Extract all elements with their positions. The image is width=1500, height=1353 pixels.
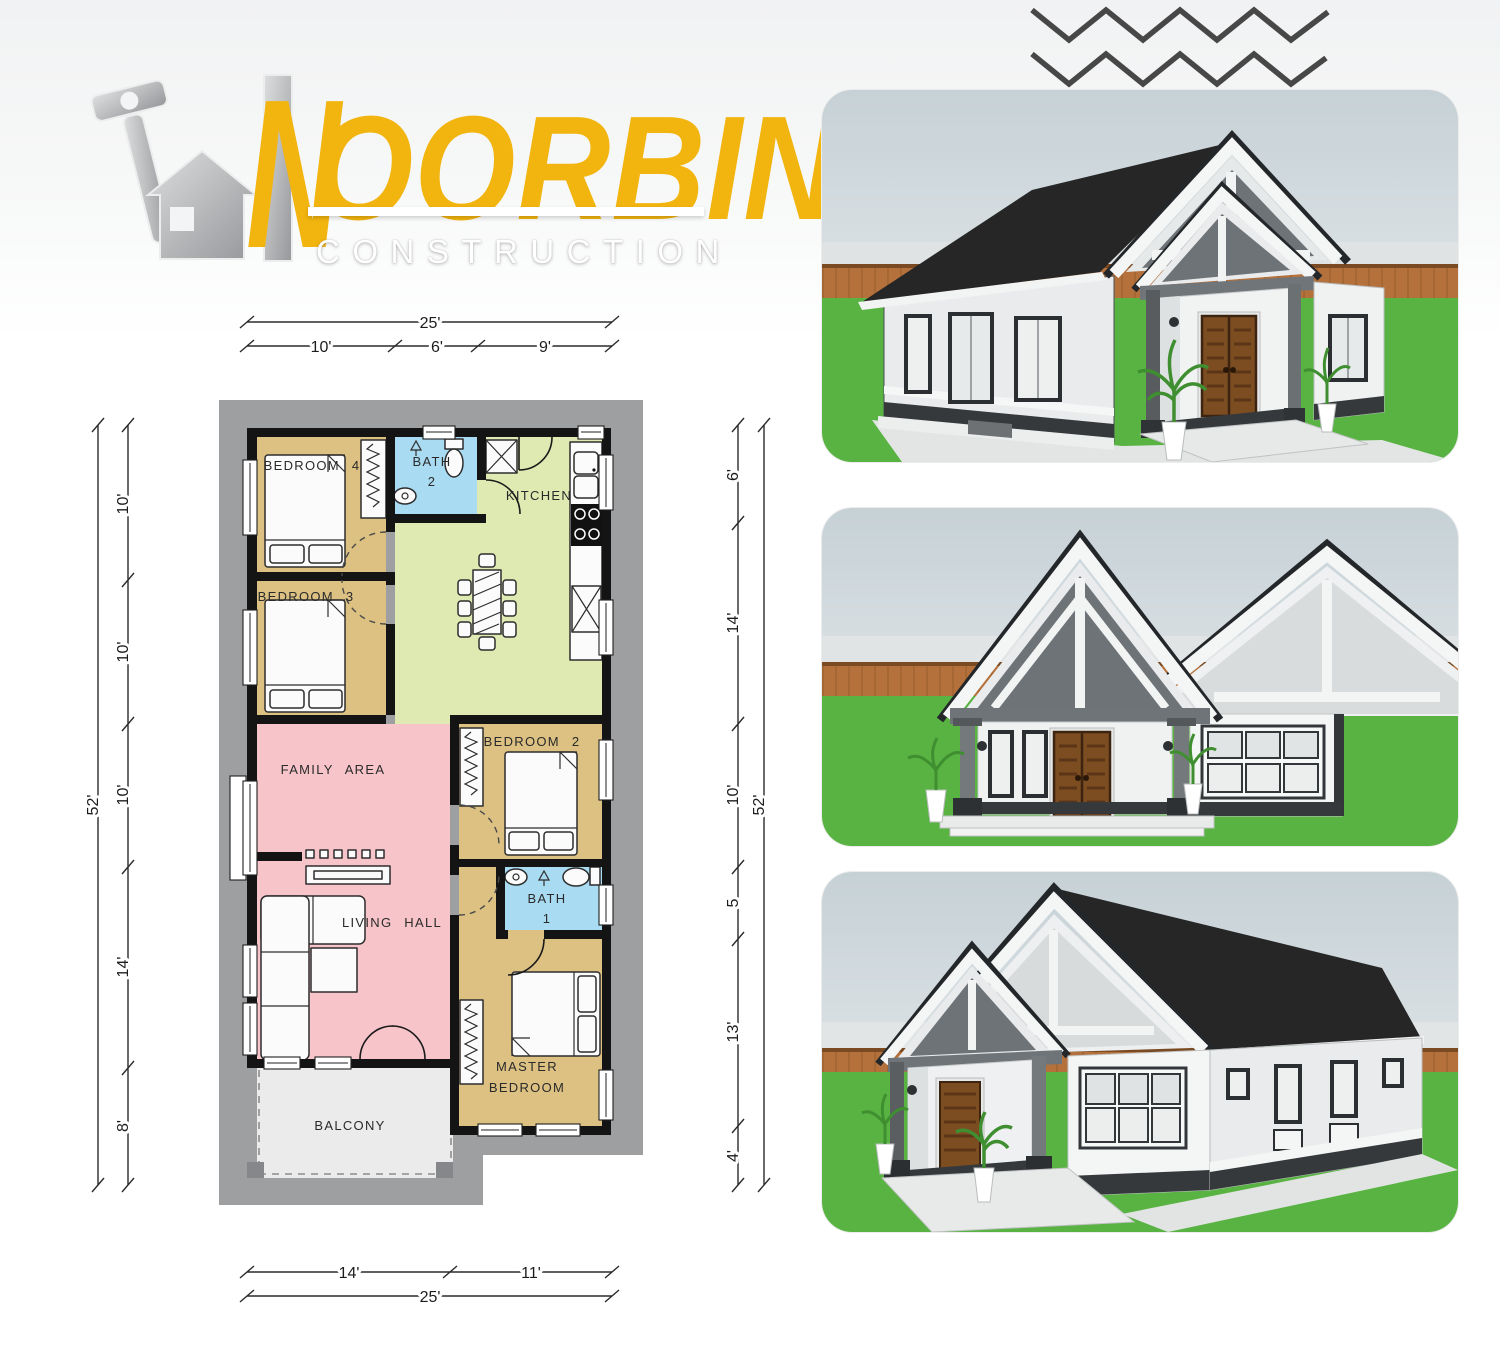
right-wing [1190,714,1344,816]
porch-column [1146,290,1160,432]
zigzag-decoration-icon [1028,0,1340,96]
porch-column [1288,284,1301,420]
bay-window [1202,726,1324,798]
svg-text:10': 10' [115,642,132,663]
front-door [1202,316,1256,416]
wall-lamp-icon [1163,741,1173,751]
svg-text:25': 25' [420,1289,441,1306]
bay-window [1080,1068,1186,1148]
house-render-perspective-left [822,90,1458,462]
room-family-area [257,724,450,867]
wardrobe-symbol-master [460,1000,483,1084]
front-door [936,1078,984,1174]
bed-symbol-bedroom3 [265,600,345,712]
dim-bottom: 14' 11' 25' [240,1265,619,1306]
svg-text:5: 5 [725,898,742,907]
wardrobe-symbol-bedroom4 [361,440,386,518]
svg-text:11': 11' [521,1265,541,1282]
dim-top: 25' 10' 6' 9' [240,315,619,356]
svg-text:14': 14' [339,1265,360,1282]
svg-text:10': 10' [115,494,132,515]
svg-text:52': 52' [751,795,768,816]
house-3d-view-3 [822,872,1458,1232]
balcony-post [436,1162,453,1178]
label-bath1-num: 1 [543,911,552,926]
svg-text:14': 14' [725,613,742,634]
svg-text:4': 4' [725,1150,742,1162]
label-bath1: BATH [528,891,567,906]
svg-text:6': 6' [431,339,443,356]
porch-column [1032,1056,1046,1170]
wall-lamp-icon [977,741,987,751]
company-logo: N OORBINA CONSTRUCTION [50,55,740,290]
label-bath2: BATH [413,454,452,469]
svg-text:9': 9' [539,339,551,356]
coffee-table-symbol [311,948,357,992]
balcony-post [247,1162,264,1178]
floor-plan: BEDROOM 4 BATH 2 KITCHEN BEDROOM 3 FAMIL… [60,300,780,1312]
washer-symbol [486,440,517,473]
right-wing [1314,282,1384,420]
house-render-perspective-right [822,872,1458,1232]
house-3d-view-2 [822,508,1458,846]
kitchen-counter-symbol [570,442,602,660]
front-wall [1068,1050,1210,1196]
label-bath2-num: 2 [428,474,437,489]
house-3d-view-1 [822,90,1458,462]
toilet-symbol-bath1 [563,867,600,886]
svg-text:52': 52' [85,795,102,816]
sink-symbol-bath1 [505,869,527,885]
svg-text:6': 6' [725,469,742,481]
wardrobe-symbol-bedroom2 [460,728,483,806]
label-living-hall: LIVING HALL [342,915,442,930]
svg-text:25': 25' [420,315,441,332]
svg-text:8': 8' [115,1120,132,1132]
label-master2: BEDROOM [489,1080,565,1095]
wall-lamp-icon [1169,317,1179,327]
porch-floor [940,816,1214,828]
dim-right: 6' 14' 10' 5 13' 4' 52' [725,418,770,1192]
label-master: MASTER [496,1059,558,1074]
label-bedroom3: BEDROOM 3 [258,589,355,604]
sink-symbol-bath2 [394,488,416,504]
bed-symbol-master [512,972,600,1056]
svg-text:10': 10' [725,785,742,806]
poster: N OORBINA CONSTRUCTION [0,0,1500,1353]
label-bedroom2: BEDROOM 2 [484,734,581,749]
label-balcony: BALCONY [314,1118,385,1133]
house-render-front [822,508,1458,846]
logo-subtitle: CONSTRUCTION [316,233,732,271]
dim-left: 52' 10' 10' 10' 14' 8' [85,418,134,1192]
house-icon [148,151,256,259]
svg-text:10': 10' [115,785,132,806]
porch [884,1056,1052,1186]
svg-text:14': 14' [115,957,132,978]
svg-text:13': 13' [725,1022,742,1043]
label-family-area: FAMILY AREA [281,762,386,777]
label-bedroom4: BEDROOM 4 [264,458,361,473]
bed-symbol-bedroom2 [505,752,577,855]
label-kitchen: KITCHEN [506,488,572,503]
logo-underline [308,207,704,216]
svg-text:10': 10' [311,339,332,356]
wall-lamp-icon [907,1085,917,1095]
